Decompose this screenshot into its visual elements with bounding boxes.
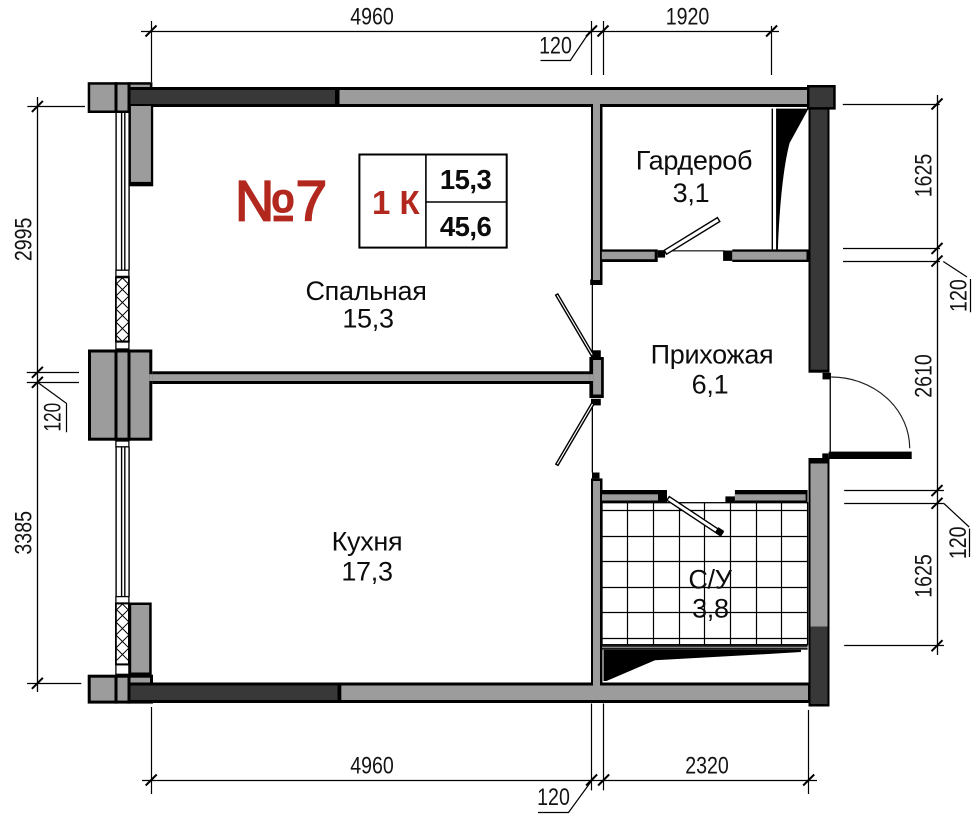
svg-text:Спальная: Спальная xyxy=(305,276,426,306)
svg-text:45,6: 45,6 xyxy=(440,211,492,242)
svg-text:120: 120 xyxy=(944,279,972,312)
svg-text:3,8: 3,8 xyxy=(692,594,729,624)
svg-text:С/У: С/У xyxy=(688,565,732,595)
svg-text:120: 120 xyxy=(539,31,572,59)
svg-text:2995: 2995 xyxy=(9,218,37,262)
svg-text:120: 120 xyxy=(944,526,972,559)
svg-text:Прихожая: Прихожая xyxy=(651,340,774,370)
svg-text:120: 120 xyxy=(40,403,67,432)
svg-text:6,1: 6,1 xyxy=(692,369,729,399)
svg-text:1 К: 1 К xyxy=(372,184,421,221)
svg-text:3,1: 3,1 xyxy=(673,178,710,208)
svg-text:2610: 2610 xyxy=(909,354,937,398)
svg-text:3385: 3385 xyxy=(9,511,37,555)
svg-text:120: 120 xyxy=(537,783,570,811)
svg-text:1625: 1625 xyxy=(909,554,937,598)
svg-text:1625: 1625 xyxy=(909,154,937,198)
svg-text:2320: 2320 xyxy=(685,751,729,779)
svg-text:№7: №7 xyxy=(234,170,327,234)
svg-text:15,3: 15,3 xyxy=(342,304,393,334)
svg-text:17,3: 17,3 xyxy=(341,557,392,587)
svg-text:1920: 1920 xyxy=(666,2,710,30)
svg-text:4960: 4960 xyxy=(350,751,394,779)
svg-text:15,3: 15,3 xyxy=(440,164,492,195)
svg-text:Гардероб: Гардероб xyxy=(636,146,752,176)
svg-text:4960: 4960 xyxy=(350,2,394,30)
svg-text:Кухня: Кухня xyxy=(332,527,403,557)
